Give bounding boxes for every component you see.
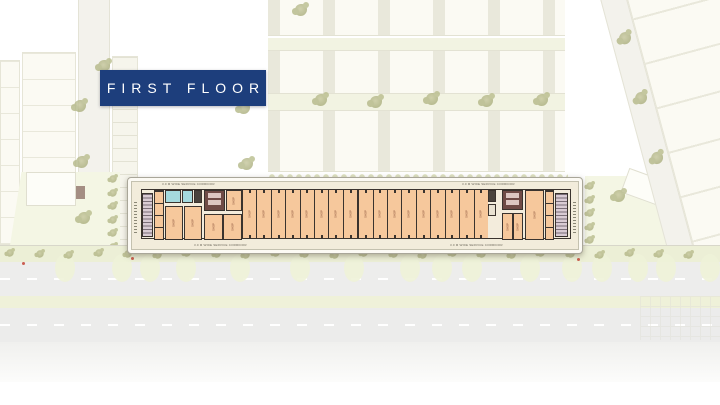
shop-label: SHOP xyxy=(393,210,396,218)
first-floor-plan-page: FIRST FLOOR 3.0 M WIDE SERVICE CORRIDOR … xyxy=(0,0,720,405)
site-structure xyxy=(76,186,85,199)
shop-unit: SHOP xyxy=(373,190,387,238)
page-title: FIRST FLOOR xyxy=(101,80,265,96)
tree-canopy xyxy=(55,254,75,282)
tree-canopy xyxy=(520,254,540,282)
staircase-left xyxy=(142,193,153,237)
shop-unit: SHOP xyxy=(165,206,183,240)
tree-icon xyxy=(241,158,253,170)
corridor-label-top-left: 3.0 M WIDE SERVICE CORRIDOR xyxy=(162,183,215,186)
tree-icon xyxy=(586,223,593,230)
lift-car xyxy=(208,200,221,205)
tree-canopy xyxy=(462,254,482,282)
shop-unit: SHOP xyxy=(416,190,430,238)
shop-unit: SHOP xyxy=(513,213,523,240)
lane-dash-line xyxy=(0,324,720,326)
shop-unit: SHOP xyxy=(430,190,444,238)
shop-label: SHOP xyxy=(335,210,338,218)
shop-label: SHOP xyxy=(292,210,295,218)
tree-icon xyxy=(95,249,102,256)
dimension-ticks-right xyxy=(573,202,576,234)
tree-canopy xyxy=(432,254,452,282)
tree-icon xyxy=(109,216,116,223)
lift-car xyxy=(208,193,221,198)
shop-unit: SHOP xyxy=(242,190,256,238)
elevator-shaft xyxy=(488,190,496,202)
shop-unit: SHOP xyxy=(285,190,299,238)
shop-unit: SHOP xyxy=(357,190,372,238)
tree-canopy xyxy=(628,254,648,282)
shop-label: SHOP xyxy=(533,211,536,219)
townhouse-row xyxy=(268,0,565,36)
corridor-label-bottom-right: 3.0 M WIDE SERVICE CORRIDOR xyxy=(450,244,503,247)
service-room xyxy=(488,204,496,216)
shop-label: SHOP xyxy=(349,210,352,218)
shop-label: SHOP xyxy=(465,210,468,218)
road-shoulder xyxy=(0,342,720,382)
tree-icon xyxy=(586,196,593,203)
shop-unit: SHOP xyxy=(525,190,544,240)
site-building xyxy=(26,172,76,206)
shop-unit: SHOP xyxy=(184,206,202,240)
lobby-left xyxy=(204,190,225,211)
floor-plan-board: 3.0 M WIDE SERVICE CORRIDOR 3.0 M WIDE S… xyxy=(127,177,583,254)
elevator-shaft xyxy=(194,190,202,203)
shop-unit: SHOP xyxy=(314,190,328,238)
toilet-room xyxy=(165,190,181,203)
shop-unit: SHOP xyxy=(328,190,342,238)
shop-unit: SHOP xyxy=(343,190,357,238)
shop-run: SHOPSHOPSHOPSHOPSHOPSHOPSHOPSHOPSHOPSHOP… xyxy=(242,190,488,238)
utility-marker xyxy=(131,257,134,260)
shop-unit: SHOP xyxy=(401,190,415,238)
tree-icon xyxy=(109,189,116,196)
staircase-right xyxy=(555,193,568,237)
tree-canopy xyxy=(344,254,364,282)
tree-canopy xyxy=(656,254,676,282)
lift-car xyxy=(506,200,519,205)
shop-label: SHOP xyxy=(233,197,236,205)
right-wing: SHOP SHOP SHOP xyxy=(488,190,570,238)
lobby-right xyxy=(502,190,523,210)
tree-canopy xyxy=(290,254,310,282)
tree-icon xyxy=(626,249,633,256)
shop-unit: SHOP xyxy=(271,190,285,238)
corridor-label-top-right: 3.0 M WIDE SERVICE CORRIDOR xyxy=(462,183,515,186)
path-strip xyxy=(268,38,565,50)
shop-label: SHOP xyxy=(365,210,368,218)
shop-label: SHOP xyxy=(212,223,215,231)
shop-unit: SHOP xyxy=(256,190,270,238)
shop-label: SHOP xyxy=(422,210,425,218)
toilet-room xyxy=(182,190,193,203)
tree-canopy xyxy=(592,254,612,282)
shop-label: SHOP xyxy=(451,210,454,218)
tree-canopy xyxy=(700,254,720,282)
shop-unit: SHOP xyxy=(204,214,223,240)
shop-unit: SHOP xyxy=(445,190,459,238)
shop-label: SHOP xyxy=(506,223,509,231)
utility-cells xyxy=(154,190,164,240)
plan-mat: 3.0 M WIDE SERVICE CORRIDOR 3.0 M WIDE S… xyxy=(131,181,579,250)
tree-icon xyxy=(685,251,692,258)
shop-label: SHOP xyxy=(320,210,323,218)
utility-marker xyxy=(22,262,25,265)
shop-unit: SHOP xyxy=(300,190,314,238)
shop-unit: SHOP xyxy=(223,214,242,240)
parking-grid xyxy=(640,296,720,340)
shop-label: SHOP xyxy=(408,210,411,218)
shop-label: SHOP xyxy=(192,219,195,227)
shop-unit: SHOP xyxy=(502,213,513,240)
dimension-ticks-left xyxy=(134,202,137,234)
shop-unit: SHOP xyxy=(459,190,473,238)
tree-canopy xyxy=(400,254,420,282)
shop-label: SHOP xyxy=(248,210,251,218)
left-wing: SHOP SHOP SHOP SHOP SHOP xyxy=(142,190,242,238)
shop-label: SHOP xyxy=(480,210,483,218)
corridor-label-bottom-left: 3.0 M WIDE SERVICE CORRIDOR xyxy=(194,244,247,247)
shop-label: SHOP xyxy=(173,219,176,227)
shop-unit: SHOP xyxy=(474,190,488,238)
shop-label: SHOP xyxy=(517,223,520,231)
shop-unit: SHOP xyxy=(387,190,401,238)
tree-canopy xyxy=(112,254,132,282)
tree-canopy xyxy=(176,254,196,282)
shop-label: SHOP xyxy=(379,210,382,218)
shop-unit: SHOP xyxy=(226,190,242,211)
shop-label: SHOP xyxy=(263,210,266,218)
floor-title-banner: FIRST FLOOR xyxy=(100,70,266,106)
tree-icon xyxy=(36,250,43,257)
shop-label: SHOP xyxy=(306,210,309,218)
shop-label: SHOP xyxy=(437,210,440,218)
building-outline: SHOP SHOP SHOP SHOP SHOP SHOPSHOP xyxy=(141,189,571,239)
utility-marker xyxy=(577,258,580,261)
shop-label: SHOP xyxy=(277,210,280,218)
lift-car xyxy=(506,193,519,198)
shop-label: SHOP xyxy=(231,223,234,231)
road-median xyxy=(0,296,720,308)
townhouse-row xyxy=(268,110,565,172)
utility-cells xyxy=(545,190,554,240)
townhouse-row xyxy=(268,50,565,94)
